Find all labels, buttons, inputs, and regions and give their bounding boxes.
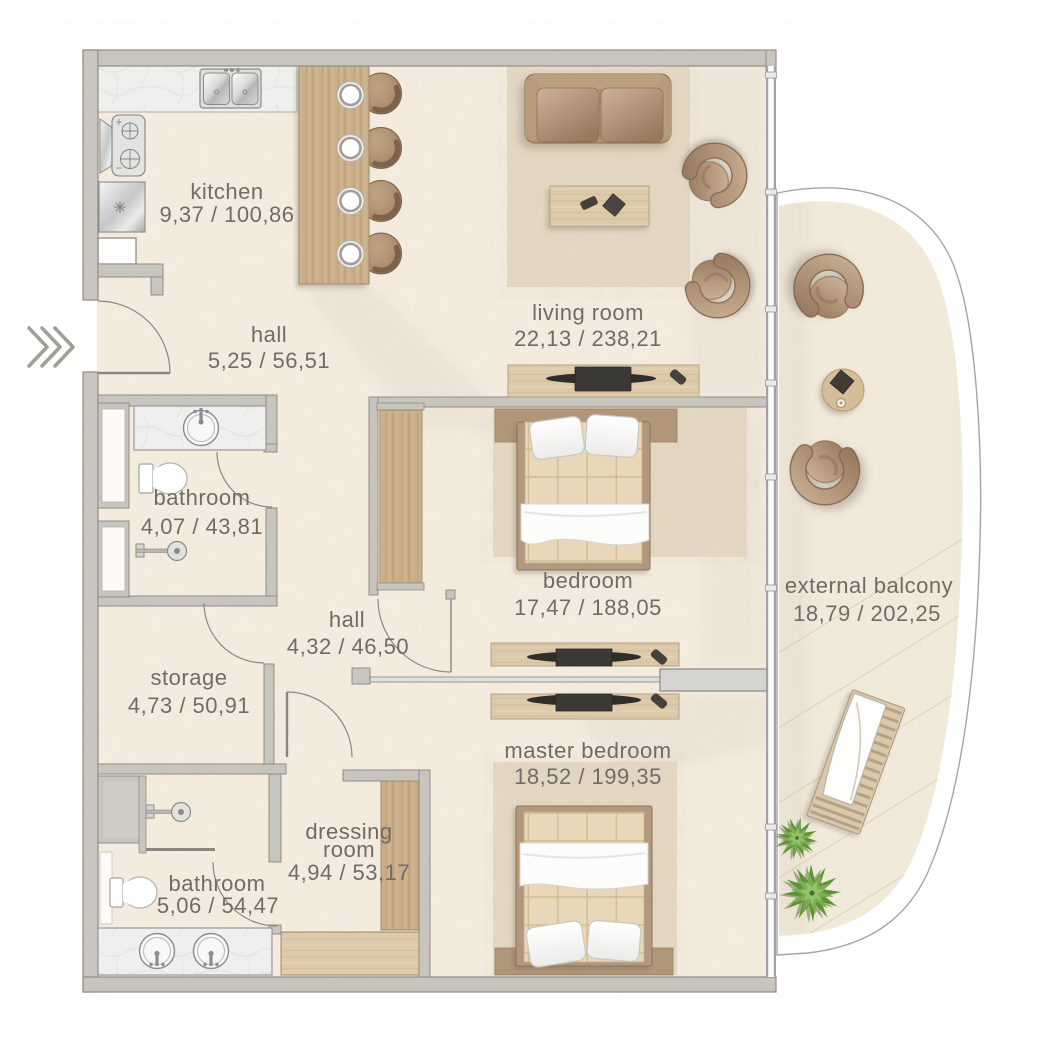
svg-text:master bedroom: master bedroom: [504, 738, 671, 763]
svg-text:hall: hall: [329, 607, 365, 632]
svg-text:17,47 / 188,05: 17,47 / 188,05: [514, 595, 662, 620]
svg-text:5,06 / 54,47: 5,06 / 54,47: [157, 893, 279, 918]
svg-text:kitchen: kitchen: [190, 179, 263, 204]
svg-text:4,94 / 53,17: 4,94 / 53,17: [288, 860, 410, 885]
svg-text:living room: living room: [532, 300, 644, 325]
svg-text:external balcony: external balcony: [785, 573, 953, 598]
svg-text:room: room: [323, 837, 375, 862]
svg-text:18,79 / 202,25: 18,79 / 202,25: [793, 601, 941, 626]
svg-text:9,37 / 100,86: 9,37 / 100,86: [160, 202, 295, 227]
svg-text:4,73 / 50,91: 4,73 / 50,91: [128, 693, 250, 718]
svg-text:18,52 / 199,35: 18,52 / 199,35: [514, 764, 662, 789]
svg-text:bedroom: bedroom: [543, 568, 633, 593]
svg-text:22,13 / 238,21: 22,13 / 238,21: [514, 326, 662, 351]
svg-text:4,07 / 43,81: 4,07 / 43,81: [141, 514, 263, 539]
svg-text:storage: storage: [151, 665, 228, 690]
svg-text:bathroom: bathroom: [154, 485, 251, 510]
svg-text:hall: hall: [251, 322, 287, 347]
svg-text:4,32 / 46,50: 4,32 / 46,50: [287, 634, 409, 659]
svg-text:5,25 / 56,51: 5,25 / 56,51: [208, 348, 330, 373]
